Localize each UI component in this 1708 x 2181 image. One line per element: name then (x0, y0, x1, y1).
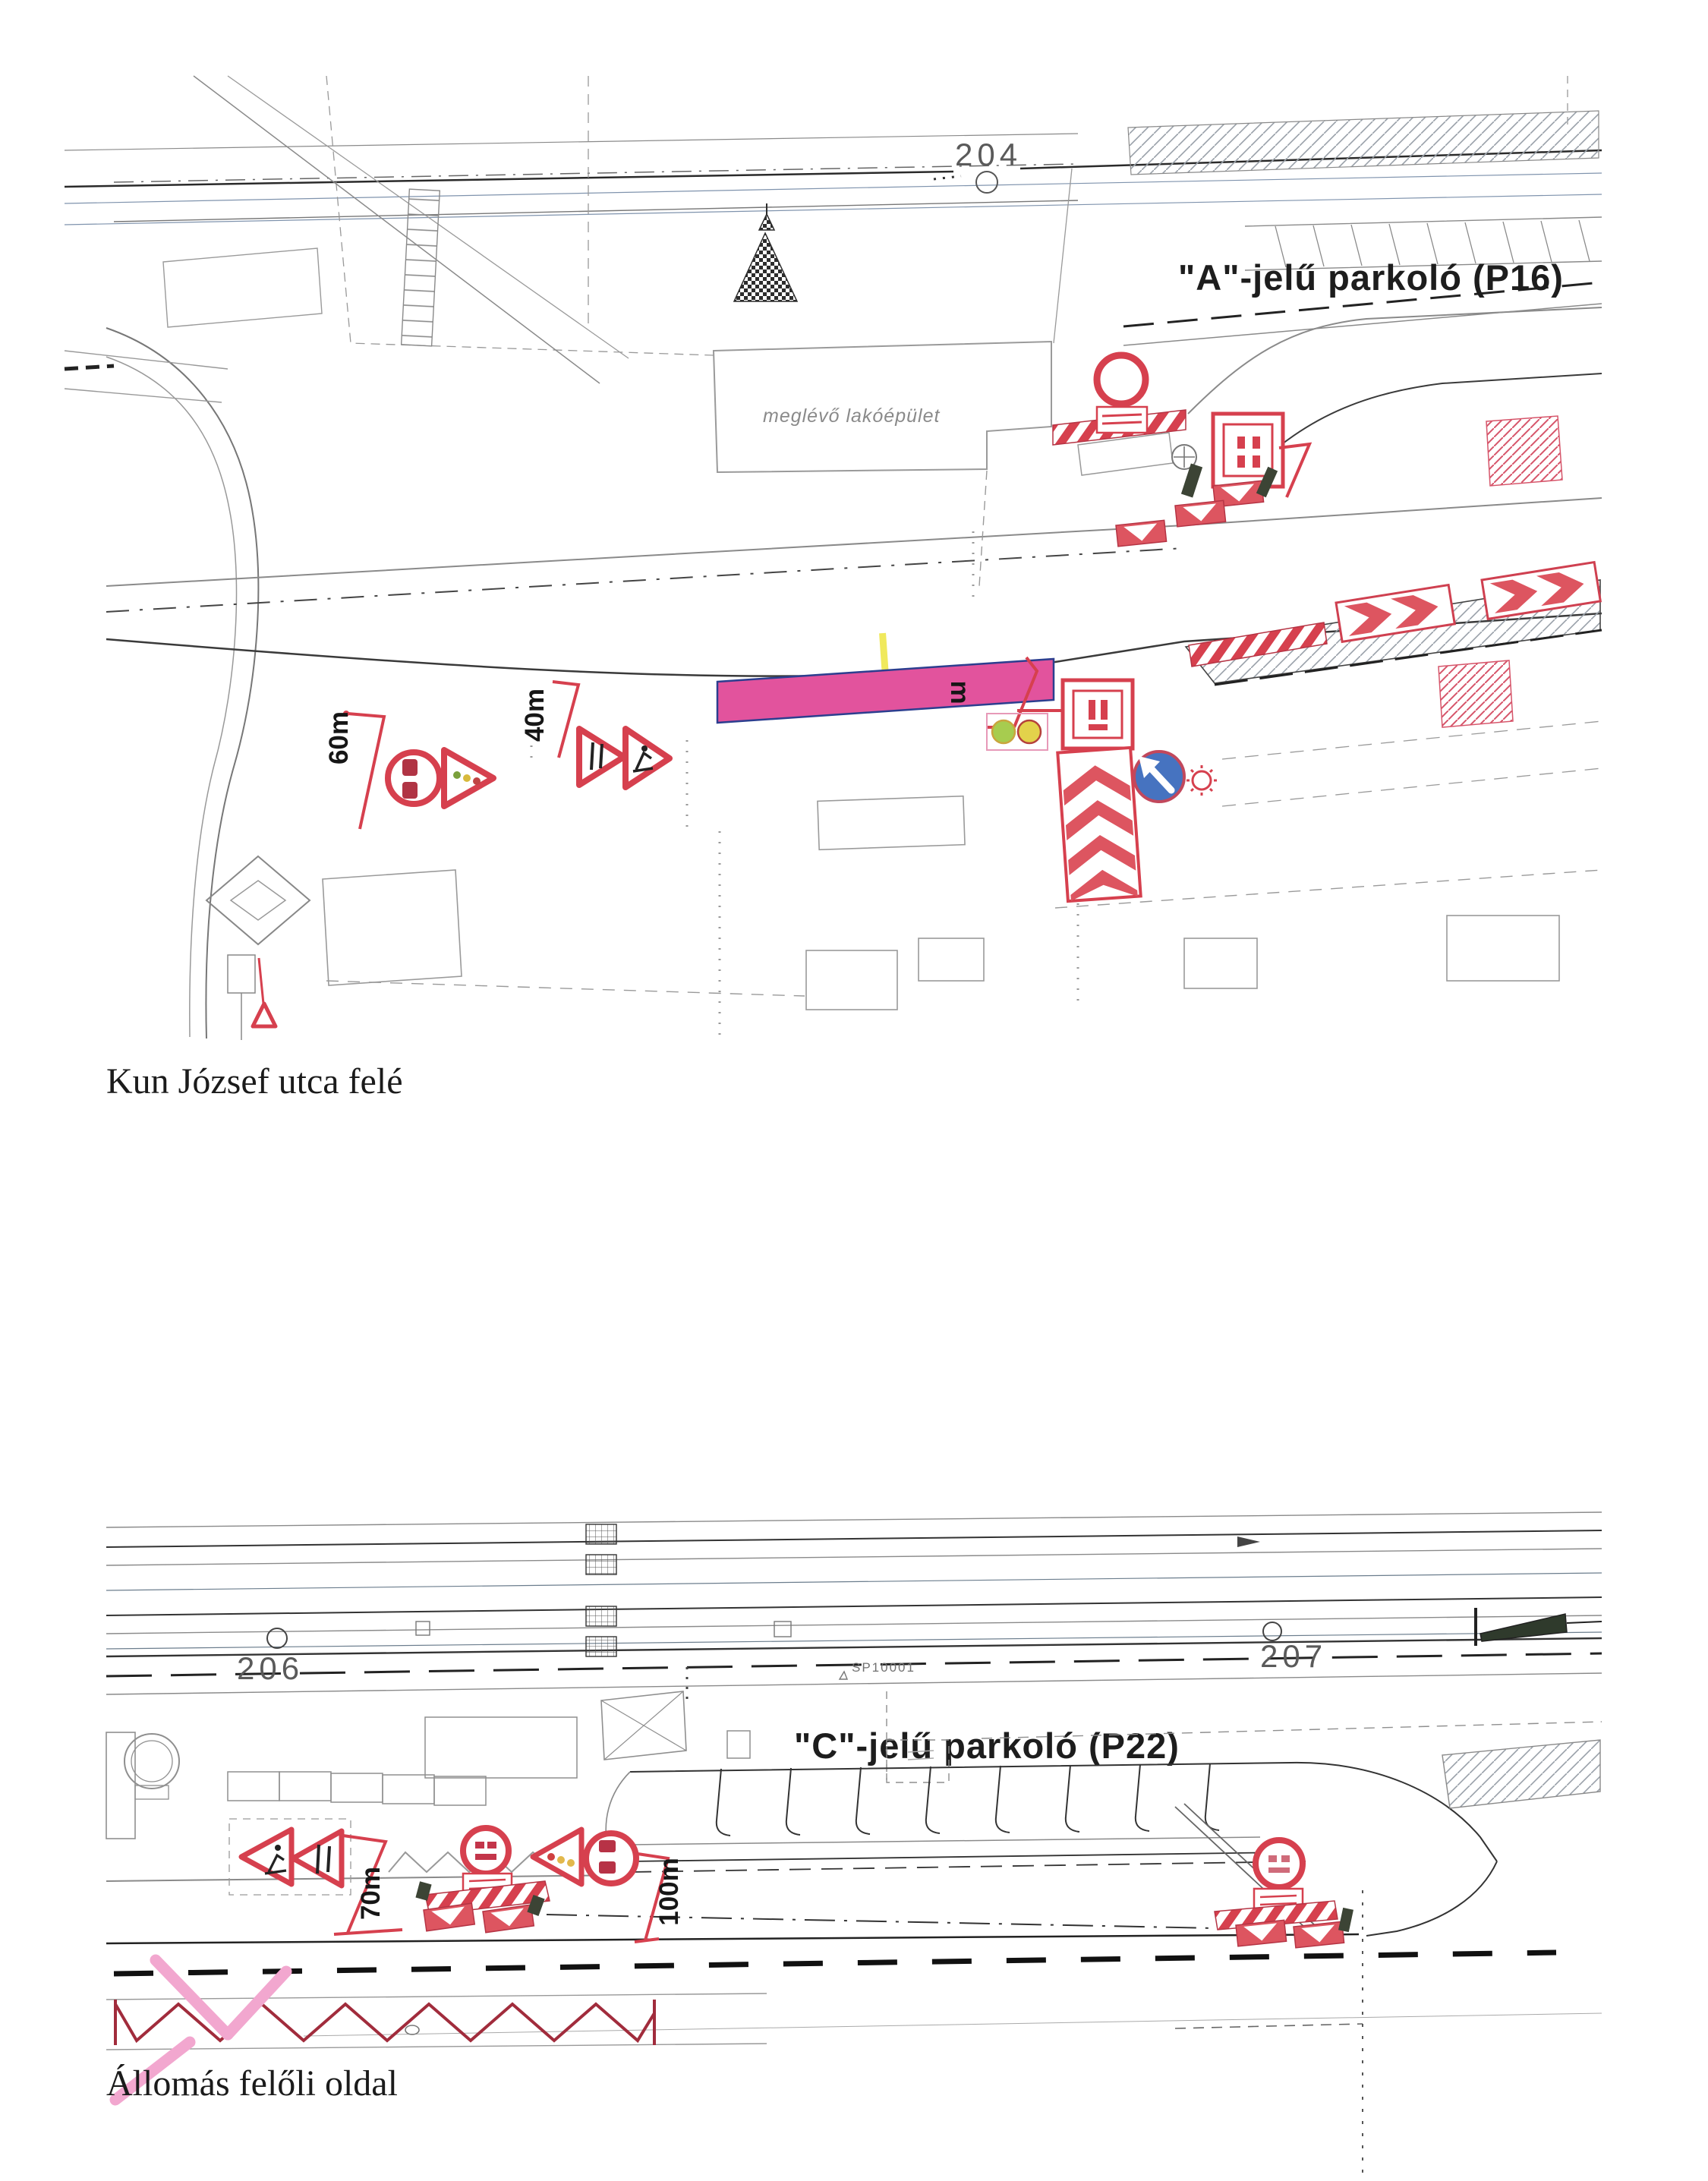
traffic-signal-warning-sign-icon (444, 750, 493, 806)
plan-c-drawing: 206 207 SP10001 "C"-jelű parkoló (P22) (106, 1512, 1602, 2177)
plan-a-left-street (65, 328, 310, 1040)
sign-group-60m: 60m (324, 711, 493, 829)
sign-group-40m: 40m (520, 682, 670, 787)
existing-building: meglévő lakóépület (714, 342, 1051, 472)
track-marker (586, 1606, 616, 1626)
plan-a-survey-lines (65, 76, 1602, 383)
roadworks-sign-icon (241, 1830, 291, 1884)
site-plan-drawing: meglévő lakóépület (0, 0, 1708, 2181)
chevron-marker-icon (1116, 520, 1167, 547)
lane-closure-band (1186, 563, 1602, 685)
survey-circle (405, 2025, 419, 2034)
track-marker (586, 1637, 616, 1656)
prohibition-sign-icon (1097, 355, 1145, 404)
track-symbol (774, 1622, 791, 1637)
direction-arrow (1237, 1536, 1260, 1547)
survey-point-206: 206 (237, 1650, 304, 1686)
track-marker (586, 1555, 616, 1574)
railway-signal-symbol (1476, 1608, 1602, 1646)
work-zone-dimension: m (945, 680, 975, 704)
sign-leader-line (553, 682, 578, 758)
scanned-traffic-plan-page: meglévő lakóépület (0, 0, 1708, 2181)
building-label: meglévő lakóépület (763, 405, 940, 427)
plan-c-title: "C"-jelű parkoló (P22) (794, 1726, 1180, 1766)
framed-info-sign-icon (1063, 680, 1133, 749)
plan-a-drawing: meglévő lakóépület (65, 76, 1602, 1102)
prohibition-sign-icon (1256, 1840, 1303, 1887)
red-hatch-area (1439, 660, 1513, 727)
ramp-hatch (1442, 1740, 1600, 1808)
red-hatch-area (1486, 416, 1562, 486)
prohibition-sign-icon (463, 1828, 509, 1874)
road-centerline (114, 1952, 1556, 1974)
work-zone-bar: m (717, 633, 1054, 723)
chevron-marker-icon (1236, 1920, 1287, 1946)
survey-point-204: 204 (955, 137, 1022, 172)
upper-sign-group (1053, 355, 1309, 547)
street (106, 1890, 1602, 2177)
warning-lamp-icon (1186, 765, 1217, 796)
road-narrows-sign-icon (579, 729, 624, 785)
distance-label-100m: 100m (654, 1858, 684, 1926)
chevron-marker-icon (1294, 1921, 1344, 1948)
keep-left-sign-icon (1134, 752, 1184, 802)
marker-tick (840, 1672, 847, 1679)
plan-a-title: "A"-jelű parkoló (P16) (1178, 257, 1564, 298)
distance-label-60m: 60m (324, 711, 354, 764)
track-symbol (416, 1622, 430, 1635)
chevron-marker-icon (483, 1905, 534, 1933)
chevron-marker-icon (1175, 500, 1226, 527)
no-stopping-sign-icon (388, 752, 440, 804)
distance-label-70m: 70m (356, 1867, 386, 1920)
plan-c-caption: Állomás felőli oldal (106, 2063, 398, 2104)
landmark-symbol-icon (734, 203, 797, 301)
marker-sp10001: SP10001 (852, 1660, 915, 1675)
supplementary-plate (1097, 407, 1147, 433)
chevron-arrow-board-icon (1057, 748, 1140, 901)
vehicle-symbol (1338, 1908, 1353, 1932)
plan-a-caption: Kun József utca felé (106, 1061, 403, 1102)
road-narrows-sign-icon (293, 1831, 342, 1886)
right-barrier-group (1215, 1840, 1353, 1948)
small-warning-sign-icon (253, 958, 276, 1026)
plan-a-parcels (323, 471, 1602, 1036)
distance-label-40m: 40m (520, 689, 550, 742)
roadworks-sign-icon (626, 729, 670, 787)
no-stopping-sign-icon (586, 1833, 636, 1883)
survey-point-207: 207 (1260, 1638, 1327, 1674)
track-marker (586, 1524, 616, 1544)
